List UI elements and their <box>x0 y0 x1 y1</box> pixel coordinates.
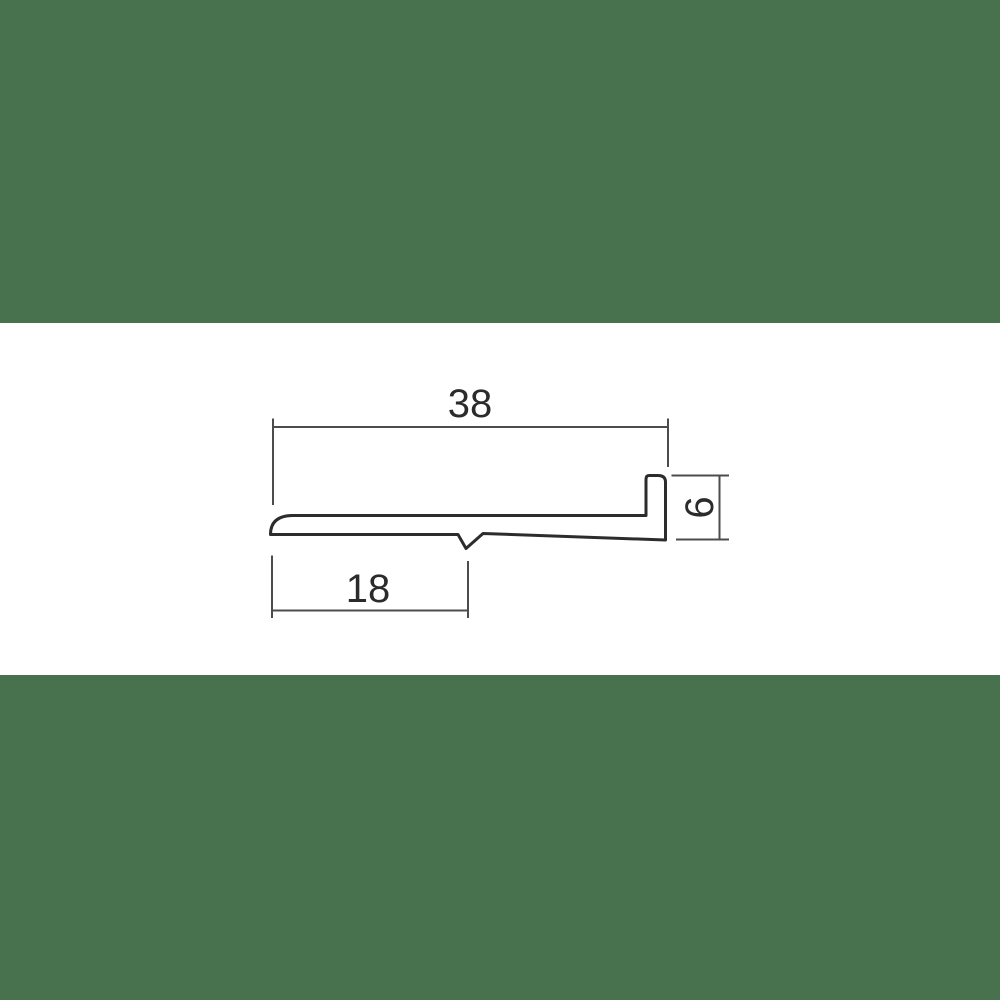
dimension-6: 6 <box>672 476 730 540</box>
technical-drawing: 38 18 6 <box>0 0 1000 1000</box>
dimension-18: 18 <box>272 556 468 619</box>
dimension-38: 38 <box>273 382 668 505</box>
profile-outline <box>271 476 666 549</box>
dim-18-label: 18 <box>346 567 391 611</box>
dim-6-label: 6 <box>678 496 722 518</box>
dim-38-label: 38 <box>448 382 493 426</box>
top-green-band <box>0 0 1000 323</box>
bottom-green-band <box>0 675 1000 1000</box>
